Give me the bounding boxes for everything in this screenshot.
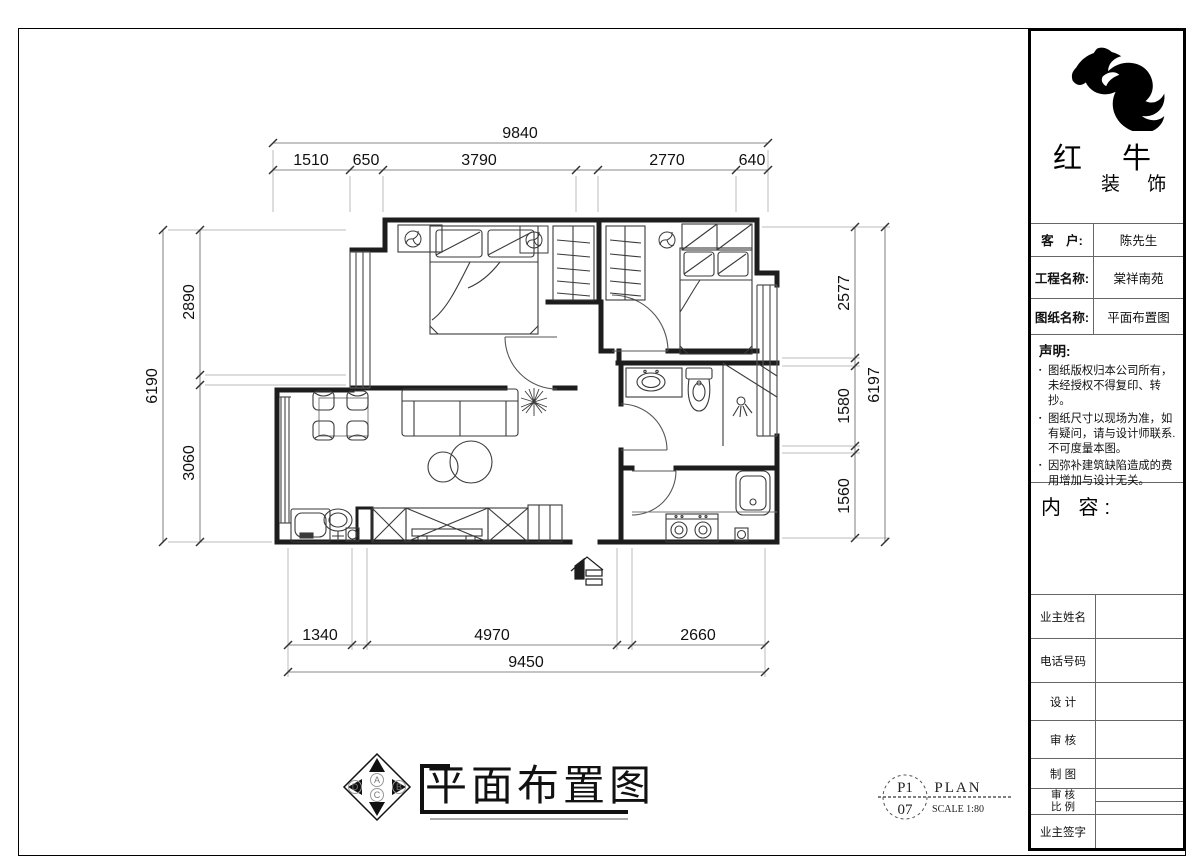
entry-door-icon	[571, 557, 603, 585]
master-bedroom-furniture	[398, 225, 594, 334]
wardrobe-hangers	[606, 226, 645, 300]
bathroom-basin	[626, 368, 682, 397]
master-bedroom-door	[505, 337, 557, 389]
title-block: 红 牛 装 饰 客 户: 陈先生 工程名称: 棠祥南苑 图纸名称: 平面布置图 …	[1028, 28, 1186, 851]
review-field[interactable]	[1096, 789, 1183, 802]
declaration-item: 图纸尺寸以现场为准，如有疑问，请与设计师联系.不可度量本图。	[1039, 412, 1177, 457]
sign-row-drafter: 制 图	[1031, 759, 1183, 789]
living-dining-furniture	[291, 388, 562, 542]
dim-top-seg-1: 650	[353, 152, 380, 169]
reviewer-field[interactable]	[1096, 721, 1183, 758]
sign-row-review-scale: 审 核 比 例	[1031, 789, 1183, 815]
sofa	[402, 389, 518, 436]
designer-field[interactable]	[1096, 683, 1183, 720]
owner-signature-field[interactable]	[1096, 815, 1183, 848]
scale-field[interactable]	[1096, 802, 1183, 814]
laundry-area	[291, 509, 359, 542]
dim-bottom-seg-0: 1340	[302, 627, 338, 644]
sign-row-owner-signature: 业主签字	[1031, 815, 1183, 848]
declaration-heading: 声明:	[1039, 340, 1177, 360]
compass-letter-n: A	[374, 775, 380, 785]
stamp-sheet-code: P1	[897, 780, 913, 796]
tv-wall-cabinets	[357, 505, 562, 542]
dim-left-total: 6190	[144, 368, 161, 404]
fan-icon	[405, 231, 421, 247]
toilet	[686, 368, 712, 411]
wardrobe-master	[553, 226, 594, 300]
dim-left-seg-1: 3060	[181, 445, 198, 481]
sign-row-phone: 电话号码	[1031, 639, 1183, 683]
declaration-item: 图纸版权归本公司所有，未经授权不得复印、转抄。	[1039, 364, 1177, 409]
content-heading: 内 容:	[1041, 491, 1183, 520]
dim-top-seg-3: 2770	[649, 152, 685, 169]
dim-top-seg-4: 640	[739, 152, 766, 169]
windows	[279, 252, 777, 523]
dimension-labels: 9840 1510 650 3790 2770 640 6190 2890 30…	[144, 125, 883, 671]
plan-stamp: P1 07 PLAN SCALE 1:80	[878, 775, 1012, 819]
info-row-customer: 客 户: 陈先生	[1031, 223, 1183, 257]
dim-top-total: 9840	[502, 125, 538, 142]
coffee-tables	[428, 441, 492, 483]
customer-label: 客 户:	[1031, 223, 1094, 256]
info-row-project: 工程名称: 棠祥南苑	[1031, 257, 1183, 299]
compass-letter-e: B	[396, 782, 402, 792]
dim-bottom-seg-2: 2660	[680, 627, 716, 644]
bathroom-fixtures	[626, 363, 777, 446]
declaration-section: 声明: 图纸版权归本公司所有，未经授权不得复印、转抄。 图纸尺寸以现场为准，如有…	[1031, 335, 1183, 483]
project-name-label: 工程名称:	[1031, 257, 1094, 298]
kitchen-fixtures	[632, 471, 777, 542]
phone-field[interactable]	[1096, 639, 1183, 682]
shower-area	[723, 363, 777, 446]
floor-plan-canvas: 9840 1510 650 3790 2770 640 6190 2890 30…	[0, 0, 1030, 865]
dim-top-seg-0: 1510	[293, 152, 329, 169]
wardrobe-top	[682, 224, 752, 250]
gas-stove	[666, 514, 718, 542]
fan-icon	[659, 232, 675, 248]
dim-bottom-total: 9450	[508, 654, 544, 671]
sign-row-owner-name: 业主姓名	[1031, 595, 1183, 639]
dim-right-seg-2: 1560	[836, 478, 853, 514]
walls	[277, 220, 777, 542]
project-name-value: 棠祥南苑	[1094, 257, 1183, 298]
content-section: 内 容:	[1031, 483, 1183, 595]
bathroom-door	[621, 404, 667, 450]
company-logo-area: 红 牛 装 饰	[1031, 31, 1183, 224]
compass-icon: A B C D	[344, 754, 410, 820]
info-row-sheet: 图纸名称: 平面布置图	[1031, 299, 1183, 335]
drawing-title-text: 平面布置图	[425, 762, 655, 809]
dim-right-total: 6197	[866, 367, 883, 403]
sheet-name-value: 平面布置图	[1094, 299, 1183, 334]
double-bed	[430, 226, 538, 334]
drawing-sheet: 9840 1510 650 3790 2770 640 6190 2890 30…	[0, 0, 1200, 865]
stamp-plan-label: PLAN	[934, 780, 981, 796]
drawing-title-bar: A B C D 平面布置图	[344, 754, 655, 820]
dim-top-seg-2: 3790	[461, 152, 497, 169]
company-name-suffix: 装 饰	[1101, 169, 1177, 196]
customer-value: 陈先生	[1094, 223, 1183, 256]
sign-row-designer: 设 计	[1031, 683, 1183, 721]
single-bed	[680, 248, 752, 354]
kitchen-sink	[736, 471, 770, 515]
bedroom2-door	[612, 295, 668, 351]
dim-right-seg-1: 1580	[836, 388, 853, 424]
bay-window-left	[350, 252, 370, 388]
living-room-window	[279, 397, 291, 523]
owner-name-field[interactable]	[1096, 595, 1183, 638]
stamp-sheet-number: 07	[898, 802, 914, 818]
dim-right-seg-0: 2577	[836, 275, 853, 311]
floor-drain	[735, 528, 748, 541]
sheet-name-label: 图纸名称:	[1031, 299, 1094, 334]
bull-logo-icon	[1061, 45, 1174, 131]
stamp-scale-label: SCALE 1:80	[932, 804, 984, 815]
dim-left-seg-0: 2890	[181, 284, 198, 320]
compass-letter-s: C	[374, 790, 381, 800]
signature-table: 业主姓名 电话号码 设 计 审 核 制 图 审 核	[1031, 595, 1183, 848]
plant-icon	[521, 388, 547, 416]
sign-row-reviewer: 审 核	[1031, 721, 1183, 759]
bedroom2-furniture	[606, 224, 752, 354]
declaration-list: 图纸版权归本公司所有，未经授权不得复印、转抄。 图纸尺寸以现场为准，如有疑问，请…	[1039, 364, 1177, 489]
dim-bottom-seg-1: 4970	[474, 627, 510, 644]
dining-table	[319, 398, 368, 436]
kitchen-door	[632, 471, 676, 515]
drafter-field[interactable]	[1096, 759, 1183, 788]
project-info-table: 客 户: 陈先生 工程名称: 棠祥南苑 图纸名称: 平面布置图	[1031, 223, 1183, 335]
compass-letter-w: D	[352, 782, 359, 792]
